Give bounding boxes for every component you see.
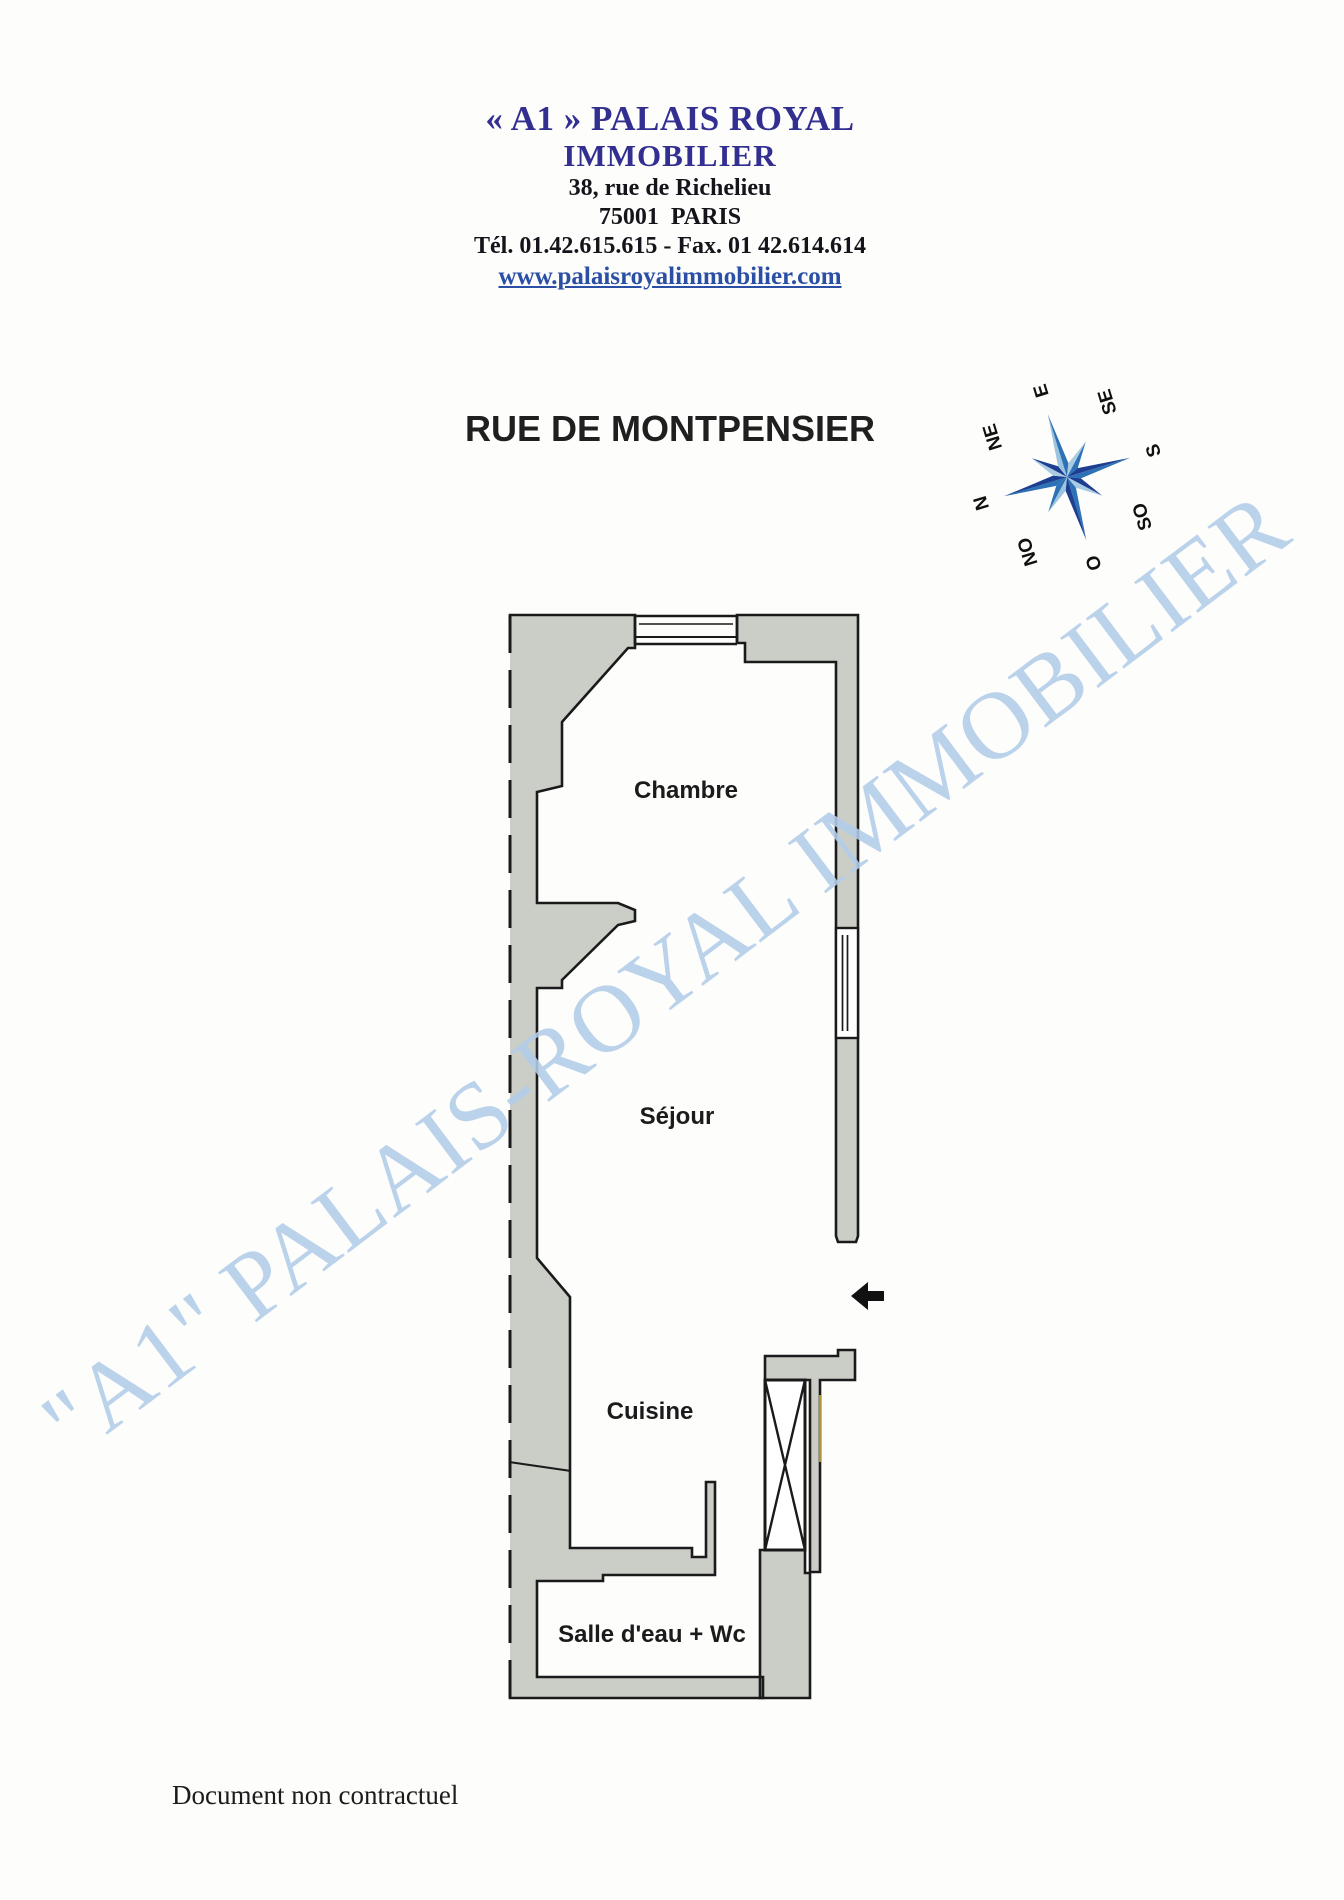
window-symbol-right bbox=[836, 928, 858, 1038]
street-title: RUE DE MONTPENSIER bbox=[420, 408, 920, 450]
compass-label-se: SE bbox=[1094, 387, 1121, 417]
agency-city-address: 75001 PARIS bbox=[300, 203, 1040, 232]
disclaimer-note: Document non contractuel bbox=[172, 1780, 458, 1811]
agency-name-line2: IMMOBILIER bbox=[300, 138, 1040, 174]
window-symbol-top bbox=[635, 615, 737, 644]
compass-label-o: O bbox=[1082, 553, 1106, 573]
room-label-salle-deau-wc: Salle d'eau + Wc bbox=[502, 1621, 802, 1649]
agency-street-address: 38, rue de Richelieu bbox=[300, 174, 1040, 203]
room-label-sejour: Séjour bbox=[577, 1103, 777, 1131]
agency-website-link[interactable]: www.palaisroyalimmobilier.com bbox=[498, 261, 841, 292]
room-label-chambre: Chambre bbox=[586, 777, 786, 805]
compass-label-e: E bbox=[1030, 381, 1054, 399]
elevator-shaft-symbol bbox=[765, 1380, 805, 1550]
room-label-cuisine: Cuisine bbox=[550, 1398, 750, 1426]
scanned-document-page: N NE E SE S SO O NO "A1" PALAIS-ROYAL IM… bbox=[0, 0, 1344, 1900]
entrance-arrow-icon bbox=[851, 1282, 884, 1310]
compass-label-no: NO bbox=[1014, 535, 1042, 568]
compass-label-s: S bbox=[1142, 441, 1166, 459]
compass-rose-icon: N NE E SE S SO O NO bbox=[944, 355, 1193, 599]
compass-label-so: SO bbox=[1129, 500, 1157, 532]
agency-name-line1: « A1 » PALAIS ROYAL bbox=[300, 100, 1040, 138]
letterhead: « A1 » PALAIS ROYAL IMMOBILIER 38, rue d… bbox=[300, 100, 1040, 292]
compass-label-ne: NE bbox=[979, 421, 1007, 452]
compass-label-n: N bbox=[970, 493, 994, 512]
agency-phone-fax: Tél. 01.42.615.615 - Fax. 01 42.614.614 bbox=[300, 232, 1040, 261]
